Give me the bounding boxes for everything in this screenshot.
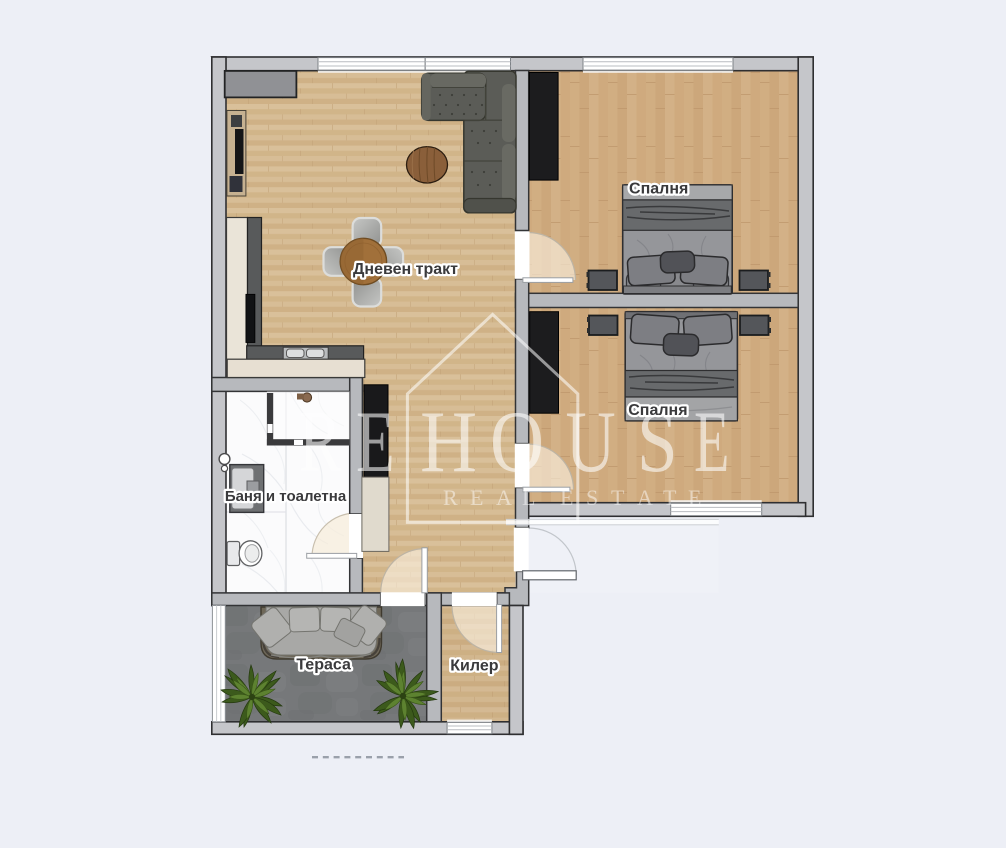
svg-text:O: O [490,392,544,490]
svg-text:U: U [566,393,616,491]
svg-text:E: E [694,394,729,491]
svg-text:E: E [356,393,395,491]
svg-text:H: H [420,393,477,491]
svg-text:Дневен тракт: Дневен тракт [353,261,458,278]
svg-text:Баня и тоалетна: Баня и тоалетна [225,488,347,505]
svg-text:Спалня: Спалня [629,181,688,198]
svg-text:REALESTATE: REALESTATE [443,485,701,510]
svg-text:Килер: Килер [450,658,498,675]
svg-text:R: R [299,393,342,491]
svg-text:Спалня: Спалня [628,402,687,419]
svg-text:Тераса: Тераса [296,657,351,674]
